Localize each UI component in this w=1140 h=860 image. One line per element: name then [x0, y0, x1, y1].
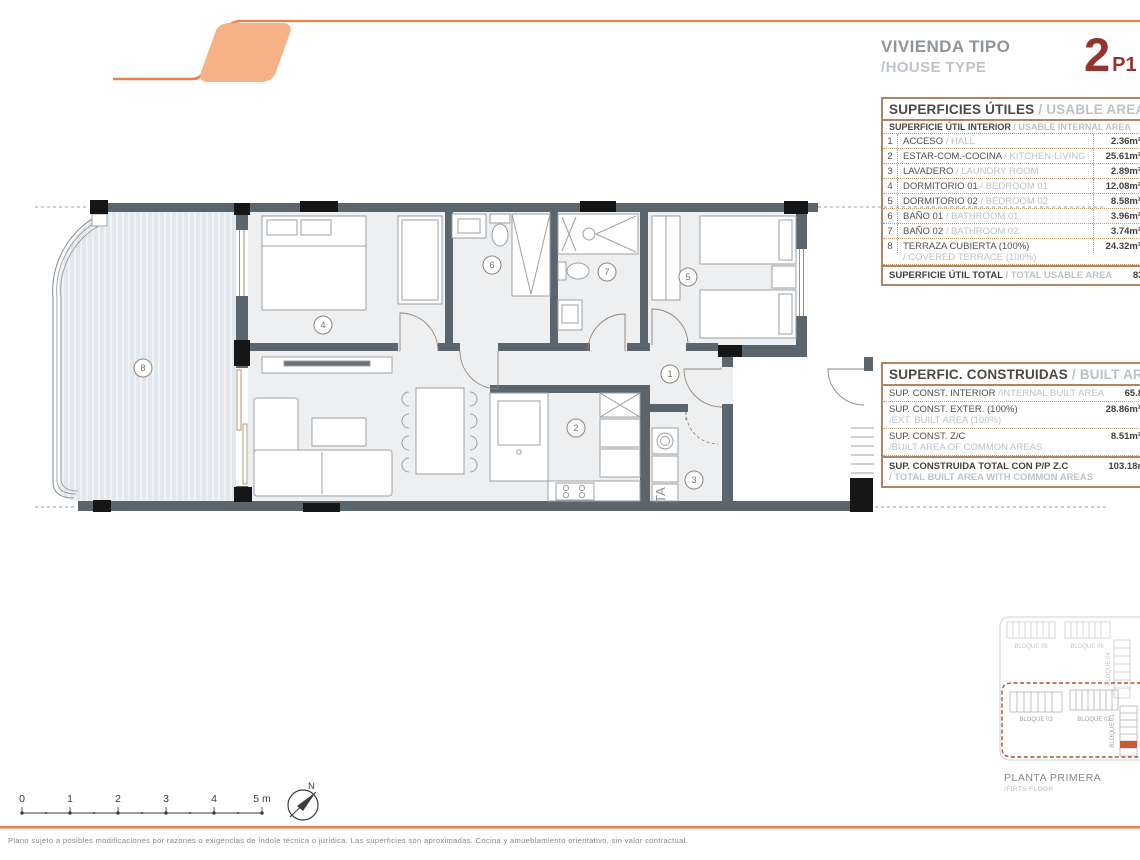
svg-text:3: 3 [691, 475, 696, 485]
bottom-rule [0, 826, 1140, 829]
laundry-ta-label: TA [653, 487, 668, 503]
room-circle-7: 7 [598, 263, 616, 281]
bloque-03-label: BLOQUE 03 [1019, 717, 1053, 723]
brand-logo [113, 21, 1140, 82]
svg-text:7: 7 [604, 267, 609, 277]
terrace [53, 212, 236, 501]
floor-plan: TA 1 2 3 4 5 6 7 8 [35, 200, 1106, 512]
compass-icon: N [288, 781, 318, 820]
sheet-drawing: TA 1 2 3 4 5 6 7 8 0 1 2 3 4 5 m [0, 0, 1140, 860]
svg-text:0: 0 [19, 793, 25, 805]
exterior-stairs [851, 428, 874, 473]
svg-text:1: 1 [667, 369, 672, 379]
plan-sheet: { "header": { "project_label_es": "VIVIE… [0, 0, 1140, 860]
bloque-02-label: BLOQUE 02 [1077, 717, 1111, 723]
room-circle-3: 3 [685, 471, 703, 489]
scale-bar: 0 1 2 3 4 5 m [19, 793, 271, 815]
first-floor-blocks [1010, 690, 1137, 756]
key-site-plan: BLOQUE 05 BLOQUE 06 BLOQUE 04 BLOQUE 03 … [1000, 617, 1140, 793]
room-circle-2: 2 [567, 419, 585, 437]
scale-labels: 0 1 2 3 4 5 m [19, 793, 271, 805]
highlighted-unit [1120, 741, 1137, 748]
svg-text:6: 6 [489, 260, 494, 270]
compass-north-label: N [308, 781, 315, 792]
room-circle-4: 4 [314, 316, 332, 334]
room-circle-1: 1 [661, 365, 679, 383]
svg-text:4: 4 [320, 320, 325, 330]
svg-text:5: 5 [685, 272, 690, 282]
bloque-04-label: BLOQUE 04 [1106, 652, 1112, 686]
svg-text:2: 2 [115, 793, 121, 805]
bloque-01-label: BLOQUE 01 [1110, 714, 1116, 748]
room-circle-5: 5 [679, 268, 697, 286]
svg-text:8: 8 [140, 363, 145, 373]
site-block-labels: BLOQUE 05 BLOQUE 06 BLOQUE 04 [1014, 644, 1112, 686]
room-circle-6: 6 [483, 256, 501, 274]
room-circle-8: 8 [134, 359, 152, 377]
key-plan-subtitle: /FIRTS FLOOR [1004, 786, 1053, 793]
svg-text:5 m: 5 m [253, 793, 271, 805]
key-plan-title: PLANTA PRIMERA [1004, 772, 1101, 784]
svg-text:3: 3 [163, 793, 169, 805]
svg-text:1: 1 [67, 793, 73, 805]
bloque-06-label: BLOQUE 06 [1070, 644, 1104, 650]
bed-double [262, 216, 366, 310]
disclaimer-text: Plano sujeto a posibles modificaciones p… [8, 836, 688, 845]
wardrobe [398, 216, 442, 304]
svg-text:4: 4 [211, 793, 217, 805]
bloque-05-label: BLOQUE 05 [1014, 644, 1048, 650]
first-floor-block-labels: BLOQUE 03 BLOQUE 02 BLOQUE 01 [1019, 714, 1116, 748]
svg-text:2: 2 [573, 423, 578, 433]
